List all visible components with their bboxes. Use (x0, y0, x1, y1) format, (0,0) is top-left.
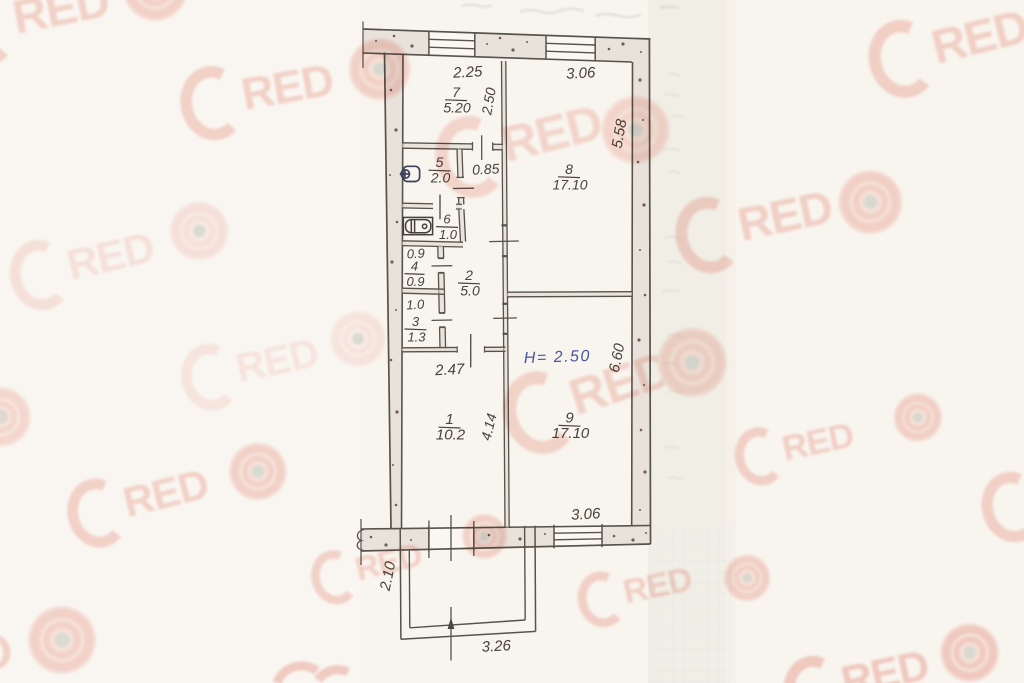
svg-text:2.25: 2.25 (452, 63, 484, 82)
svg-text:3: 3 (412, 314, 420, 329)
svg-text:7: 7 (452, 84, 461, 100)
svg-text:1.0: 1.0 (439, 227, 458, 242)
svg-text:0.85: 0.85 (472, 160, 500, 177)
svg-text:2: 2 (464, 267, 473, 283)
svg-text:6: 6 (443, 212, 451, 227)
svg-text:3.06: 3.06 (571, 505, 602, 524)
svg-text:8: 8 (565, 161, 573, 177)
svg-text:3.06: 3.06 (566, 64, 597, 83)
svg-text:1.3: 1.3 (407, 330, 426, 345)
svg-text:17.10: 17.10 (552, 176, 587, 192)
svg-text:1: 1 (445, 411, 453, 428)
svg-text:4: 4 (411, 259, 418, 274)
svg-text:2.47: 2.47 (434, 361, 466, 380)
svg-text:10.2: 10.2 (436, 427, 466, 444)
svg-text:H= 2.50: H= 2.50 (524, 348, 592, 367)
svg-text:3.26: 3.26 (481, 637, 512, 656)
svg-text:5.0: 5.0 (460, 283, 480, 299)
svg-text:0.9: 0.9 (406, 274, 424, 289)
svg-text:1.0: 1.0 (406, 297, 426, 313)
svg-text:5.20: 5.20 (443, 99, 470, 115)
svg-text:9: 9 (565, 409, 574, 426)
